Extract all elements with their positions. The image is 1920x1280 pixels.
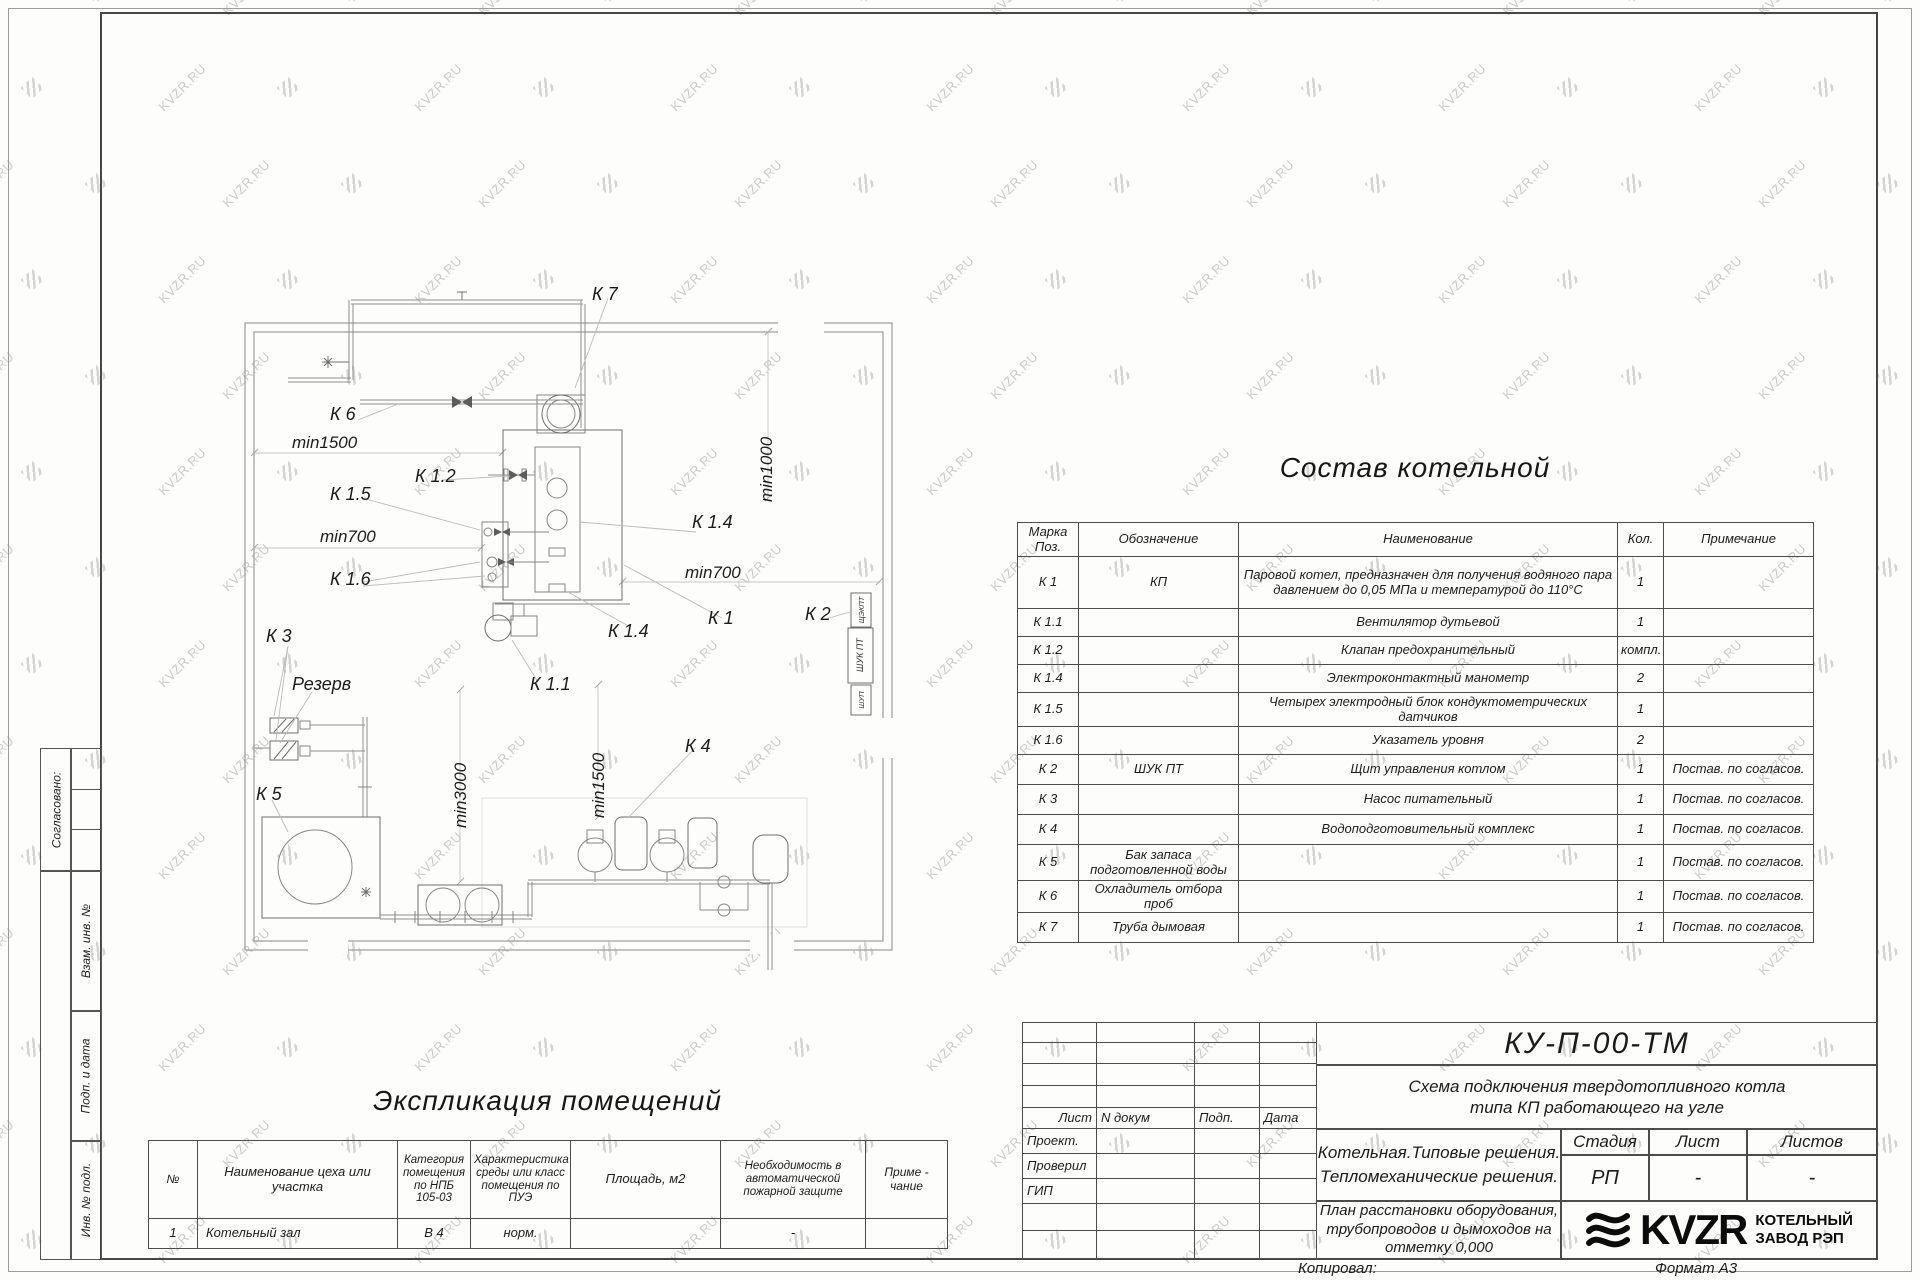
- col-header-note: Примечание: [1664, 523, 1814, 557]
- revision-row: [1023, 1023, 1317, 1043]
- cell-note: [866, 1219, 948, 1249]
- cell: [1023, 1086, 1097, 1108]
- sheets-value: -: [1746, 1154, 1878, 1202]
- cell-note: [1664, 727, 1814, 755]
- label-min700-left: min700: [320, 527, 376, 546]
- revision-row: [1023, 1204, 1317, 1231]
- col-header-sheet: Лист: [1023, 1108, 1097, 1129]
- cell: [1097, 1231, 1195, 1259]
- company-logo-cell: KVZR КОТЕЛЬНЫЙ ЗАВОД РЭП: [1560, 1200, 1878, 1260]
- cell: [1260, 1204, 1317, 1231]
- label-min1500-v: min1500: [589, 752, 608, 818]
- cell-sign: [1079, 665, 1239, 693]
- cell: [1023, 1043, 1097, 1064]
- cell-mark: К 6: [1018, 881, 1079, 913]
- cabinet-label-shuk: ШУК ПТ: [855, 637, 865, 672]
- stamp-alt-inv-label: Взам. инв. №: [79, 904, 93, 978]
- composition-row: К 1 КП Паровой котел, предназначен для п…: [1018, 557, 1814, 609]
- cabinet-label-shup: ШУП: [857, 691, 866, 709]
- stamp-alt-inv: Взам. инв. №: [70, 870, 102, 1012]
- col-header-shop: Наименование цеха или участка: [198, 1141, 398, 1219]
- revision-row: [1023, 1064, 1317, 1086]
- cabinet-label-schekpt: ЩЭКПТ: [857, 595, 866, 623]
- cell-name: Насос питательный: [1239, 785, 1618, 815]
- cell-mark: К 1.2: [1018, 637, 1079, 665]
- cell: [1097, 1179, 1195, 1204]
- col-header-category: Категория помещения по НПБ 105-03: [398, 1141, 471, 1219]
- door-gap-bottom-left: [308, 934, 348, 954]
- project-line2: Тепломеханические решения.: [1320, 1165, 1558, 1189]
- cell-qty: 2: [1618, 665, 1664, 693]
- label-k11: К 1.1: [530, 674, 571, 694]
- col-header-fire: Необходимость в автоматической пожарной …: [721, 1141, 866, 1219]
- titleblock-revision-grid: Лист N докум Подп. Дата Проект. Проверил…: [1022, 1022, 1317, 1259]
- role-gip: ГИП: [1023, 1179, 1097, 1204]
- cell: [1195, 1023, 1260, 1043]
- cell: [1260, 1064, 1317, 1086]
- cell-mark: К 1.1: [1018, 609, 1079, 637]
- cell: [1260, 1023, 1317, 1043]
- watermark-logo-icon: [1365, 0, 1388, 3]
- role-row: ГИП: [1023, 1179, 1317, 1204]
- doc-subtitle-cell: Схема подключения твердотопливного котла…: [1316, 1064, 1878, 1130]
- company-line2: ЗАВОД РЭП: [1755, 1230, 1853, 1248]
- cell-sign: КП: [1079, 557, 1239, 609]
- cell-note: [1664, 609, 1814, 637]
- cell: [1097, 1023, 1195, 1043]
- cell-mark: К 7: [1018, 913, 1079, 943]
- boiler-k1: [495, 395, 630, 604]
- sheets-value-text: -: [1809, 1167, 1816, 1190]
- label-k4: К 4: [685, 736, 711, 756]
- composition-row: К 1.2 Клапан предохранительный компл.: [1018, 637, 1814, 665]
- copied-label: Копировал:: [1298, 1260, 1377, 1277]
- sheets-header: Листов: [1746, 1128, 1878, 1156]
- sensor-block: [482, 522, 549, 587]
- stage-header: Стадия: [1560, 1128, 1650, 1156]
- label-k16: К 1.6: [330, 569, 372, 589]
- cell-qty: компл.: [1618, 637, 1664, 665]
- door-gap-top: [778, 318, 824, 336]
- plan-labels: К 7 К 6 min1500 К 1.2 К 1.5 min700 К 1.6…: [256, 284, 831, 828]
- cell-note: Постав. по согласов.: [1664, 815, 1814, 845]
- cell-name: Указатель уровня: [1239, 727, 1618, 755]
- watermark-logo-icon: [1877, 0, 1900, 3]
- cell-qty: 1: [1618, 913, 1664, 943]
- stamp-approved: Согласовано:: [40, 748, 72, 872]
- label-min1000-v: min1000: [757, 436, 776, 502]
- cell: [1195, 1179, 1260, 1204]
- cell-name: [1239, 845, 1618, 881]
- composition-row: К 6 Охладитель отбора проб 1 Постав. по …: [1018, 881, 1814, 913]
- cell-name: [1239, 881, 1618, 913]
- cell-name: Паровой котел, предназначен для получени…: [1239, 557, 1618, 609]
- composition-row: К 2 ШУК ПТ Щит управления котлом 1 Поста…: [1018, 755, 1814, 785]
- stamp-sign-date: Подп. и дата: [70, 1010, 102, 1142]
- cell-mark: К 1.5: [1018, 693, 1079, 727]
- cell-note: [1664, 557, 1814, 609]
- cell-sign: [1079, 785, 1239, 815]
- sheet-title-cell: План расстановки оборудования, трубопров…: [1316, 1200, 1562, 1260]
- cell-note: Постав. по согласов.: [1664, 785, 1814, 815]
- company-line1: КОТЕЛЬНЫЙ: [1755, 1212, 1853, 1230]
- cell-qty: 1: [1618, 557, 1664, 609]
- cell-name: Вентилятор дутьевой: [1239, 609, 1618, 637]
- cell-shop: Котельный зал: [198, 1219, 398, 1249]
- vent-symbol: [322, 356, 349, 368]
- explication-title: Экспликация помещений: [148, 1085, 947, 1117]
- cell: [1097, 1204, 1195, 1231]
- cell-qty: 1: [1618, 609, 1664, 637]
- cell: [1260, 1231, 1317, 1259]
- cell-note: Постав. по согласов.: [1664, 913, 1814, 943]
- cell-sign: [1079, 693, 1239, 727]
- cell: [1097, 1129, 1195, 1154]
- composition-table: Марка Поз. Обозначение Наименование Кол.…: [1017, 522, 1814, 943]
- sheet-value: -: [1648, 1154, 1748, 1202]
- col-header-doc: N докум: [1097, 1108, 1195, 1129]
- stamp-inv-orig: Инв. № подл.: [70, 1140, 102, 1260]
- stage-value-text: РП: [1591, 1167, 1619, 1190]
- control-cabinets: ЩЭКПТ ШУК ПТ ШУП: [848, 593, 873, 715]
- cell: [1195, 1204, 1260, 1231]
- cell-mark: К 2: [1018, 755, 1079, 785]
- water-tank-k5: [262, 817, 380, 918]
- label-k15: К 1.5: [330, 484, 372, 504]
- cell-note: [1664, 693, 1814, 727]
- col-header-name: Наименование: [1239, 523, 1618, 557]
- composition-row: К 1.4 Электроконтактный манометр 2: [1018, 665, 1814, 693]
- watermark-logo-icon: [853, 0, 876, 3]
- cell-qty: 1: [1618, 815, 1664, 845]
- company-name: КОТЕЛЬНЫЙ ЗАВОД РЭП: [1755, 1212, 1853, 1248]
- label-k12: К 1.2: [415, 466, 456, 486]
- cell-sign: Бак запаса подготовленной воды: [1079, 845, 1239, 881]
- cell-note: Постав. по согласов.: [1664, 845, 1814, 881]
- sheet-title-line2: трубопроводов и дымоходов на: [1326, 1221, 1551, 1240]
- label-k14-right: К 1.4: [692, 512, 733, 532]
- project-line1: Котельная.Типовые решения.: [1318, 1141, 1560, 1165]
- composition-row: К 5 Бак запаса подготовленной воды 1 Пос…: [1018, 845, 1814, 881]
- col-header-environment: Характеристика среды или класс помещения…: [471, 1141, 571, 1219]
- composition-row: К 7 Труба дымовая 1 Постав. по согласов.: [1018, 913, 1814, 943]
- cell-sign: [1079, 637, 1239, 665]
- composition-row: К 1.1 Вентилятор дутьевой 1: [1018, 609, 1814, 637]
- cell-qty: 1: [1618, 755, 1664, 785]
- cell-fire: -: [721, 1219, 866, 1249]
- watermark-logo-icon: [1109, 0, 1132, 3]
- sheets-header-label: Листов: [1781, 1132, 1843, 1152]
- role-row: Проверил: [1023, 1154, 1317, 1179]
- format-label: Формат А3: [1655, 1260, 1737, 1277]
- role-row: Проект.: [1023, 1129, 1317, 1154]
- kvzr-logo-icon: [1585, 1210, 1631, 1250]
- label-k6: К 6: [330, 404, 357, 424]
- col-header-mark: Марка Поз.: [1018, 523, 1079, 557]
- role-checked: Проверил: [1023, 1154, 1097, 1179]
- cell-note: Постав. по согласов.: [1664, 755, 1814, 785]
- cell: [1023, 1064, 1097, 1086]
- safety-valve: [488, 469, 535, 481]
- stage-header-label: Стадия: [1573, 1132, 1637, 1152]
- cell-mark: К 1.4: [1018, 665, 1079, 693]
- role-project: Проект.: [1023, 1129, 1097, 1154]
- revision-row: [1023, 1231, 1317, 1259]
- col-header-area: Площадь, м2: [571, 1141, 721, 1219]
- stamp-divider: [71, 789, 101, 790]
- composition-row: К 1.5 Четырех электродный блок кондуктом…: [1018, 693, 1814, 727]
- logo-wordmark: KVZR: [1640, 1206, 1746, 1254]
- sheet-header: Лист: [1648, 1128, 1748, 1156]
- cell-name: [1239, 913, 1618, 943]
- cell-sign: [1079, 727, 1239, 755]
- doc-subtitle-line2: типа КП работающего на угле: [1470, 1097, 1724, 1118]
- label-reserve: Резерв: [292, 674, 351, 694]
- doc-number-cell: КУ-П-00-ТМ: [1316, 1022, 1878, 1066]
- cell-sign: Труба дымовая: [1079, 913, 1239, 943]
- cell-environment: норм.: [471, 1219, 571, 1249]
- cell: [1260, 1086, 1317, 1108]
- label-k2: К 2: [805, 604, 831, 624]
- cell-sign: ШУК ПТ: [1079, 755, 1239, 785]
- stamp-approved-subcells: [70, 748, 102, 872]
- cell-name: Водоподготовительный комплекс: [1239, 815, 1618, 845]
- revision-header-row: Лист N докум Подп. Дата: [1023, 1108, 1317, 1129]
- col-header-date: Дата: [1260, 1108, 1317, 1129]
- leader-lines: [272, 298, 850, 832]
- sheet-value-text: -: [1695, 1167, 1702, 1190]
- stamp-divider: [71, 829, 101, 830]
- col-header-sign: Обозначение: [1079, 523, 1239, 557]
- col-header-note: Приме - чание: [866, 1141, 948, 1219]
- cell: [1260, 1043, 1317, 1064]
- cell-mark: К 5: [1018, 845, 1079, 881]
- explication-row: 1 Котельный зал В 4 норм. -: [149, 1219, 948, 1249]
- cell-mark: К 4: [1018, 815, 1079, 845]
- composition-row: К 4 Водоподготовительный комплекс 1 Пост…: [1018, 815, 1814, 845]
- stamp-sign-date-label: Подп. и дата: [79, 1038, 93, 1113]
- cell-qty: 2: [1618, 727, 1664, 755]
- cell: [1260, 1129, 1317, 1154]
- cell-qty: 1: [1618, 845, 1664, 881]
- label-min1500-h: min1500: [292, 433, 358, 452]
- composition-row: К 1.6 Указатель уровня 2: [1018, 727, 1814, 755]
- cell-qty: 1: [1618, 785, 1664, 815]
- cell: [1097, 1154, 1195, 1179]
- cell: [1195, 1129, 1260, 1154]
- cell-area: [571, 1219, 721, 1249]
- composition-row: К 3 Насос питательный 1 Постав. по согла…: [1018, 785, 1814, 815]
- floor-plan: ЩЭКПТ ШУК ПТ ШУП К 7 К 6 m: [230, 270, 950, 990]
- project-name-cell: Котельная.Типовые решения. Тепломеханиче…: [1316, 1128, 1562, 1202]
- label-k1: К 1: [708, 608, 734, 628]
- cell: [1023, 1204, 1097, 1231]
- cell: [1260, 1179, 1317, 1204]
- watermark-logo-icon: [1621, 0, 1644, 3]
- cell: [1097, 1043, 1195, 1064]
- label-min700-right: min700: [685, 563, 741, 582]
- cell-qty: 1: [1618, 693, 1664, 727]
- door-gap-right: [876, 718, 896, 758]
- cell: [1195, 1231, 1260, 1259]
- drawing-sheet: KVZR.RUKVZR.RUKVZR.RUKVZR.RUKVZR.RUKVZR.…: [0, 0, 1920, 1280]
- revision-row: [1023, 1086, 1317, 1108]
- cell: [1097, 1064, 1195, 1086]
- label-k14-bottom: К 1.4: [608, 621, 649, 641]
- sheet-title-line1: План расстановки оборудования,: [1320, 1202, 1558, 1221]
- cell-name: Электроконтактный манометр: [1239, 665, 1618, 693]
- cell-name: Четырех электродный блок кондуктометриче…: [1239, 693, 1618, 727]
- cell-note: [1664, 637, 1814, 665]
- sheet-header-label: Лист: [1676, 1132, 1720, 1152]
- blower-fan: [485, 603, 537, 641]
- watermark-logo-icon: [85, 0, 108, 3]
- composition-title: Состав котельной: [1017, 452, 1813, 484]
- label-k5: К 5: [256, 784, 283, 804]
- cell: [1260, 1154, 1317, 1179]
- stage-value: РП: [1560, 1154, 1650, 1202]
- cell-sign: [1079, 815, 1239, 845]
- cell-mark: К 1.6: [1018, 727, 1079, 755]
- doc-subtitle-line1: Схема подключения твердотопливного котла: [1409, 1076, 1786, 1097]
- watermark-logo-icon: [597, 0, 620, 3]
- cell: [1097, 1086, 1195, 1108]
- stamp-approved-label: Согласовано:: [49, 772, 63, 849]
- label-k3: К 3: [266, 626, 292, 646]
- cell-note: [1664, 665, 1814, 693]
- cell-qty: 1: [1618, 881, 1664, 913]
- cell: [1195, 1043, 1260, 1064]
- cell-name: Клапан предохранительный: [1239, 637, 1618, 665]
- cell: [1195, 1064, 1260, 1086]
- cell-sign: Охладитель отбора проб: [1079, 881, 1239, 913]
- sheet-title-line3: отметку 0,000: [1385, 1239, 1493, 1258]
- cell-mark: К 1: [1018, 557, 1079, 609]
- cell-sign: [1079, 609, 1239, 637]
- col-header-num: №: [149, 1141, 198, 1219]
- cell-name: Щит управления котлом: [1239, 755, 1618, 785]
- explication-header-row: № Наименование цеха или участка Категори…: [149, 1141, 948, 1219]
- col-header-qty: Кол.: [1618, 523, 1664, 557]
- label-min3000-v: min3000: [451, 762, 470, 828]
- watermark-logo-icon: [341, 0, 364, 3]
- cell: [1023, 1023, 1097, 1043]
- composition-header-row: Марка Поз. Обозначение Наименование Кол.…: [1018, 523, 1814, 557]
- cell-mark: К 3: [1018, 785, 1079, 815]
- cell-category: В 4: [398, 1219, 471, 1249]
- cell: [1023, 1231, 1097, 1259]
- stamp-inv-orig-label: Инв. № подл.: [79, 1163, 93, 1237]
- doc-number: КУ-П-00-ТМ: [1504, 1027, 1690, 1061]
- label-k7: К 7: [592, 284, 619, 304]
- cell-num: 1: [149, 1219, 198, 1249]
- cell: [1195, 1154, 1260, 1179]
- water-treatment-k4: [380, 798, 807, 970]
- revision-row: [1023, 1043, 1317, 1064]
- stamp-empty-strip: [40, 870, 72, 1260]
- explication-table: № Наименование цеха или участка Категори…: [148, 1140, 948, 1249]
- col-header-sign: Подп.: [1195, 1108, 1260, 1129]
- cell-note: Постав. по согласов.: [1664, 881, 1814, 913]
- cell: [1195, 1086, 1260, 1108]
